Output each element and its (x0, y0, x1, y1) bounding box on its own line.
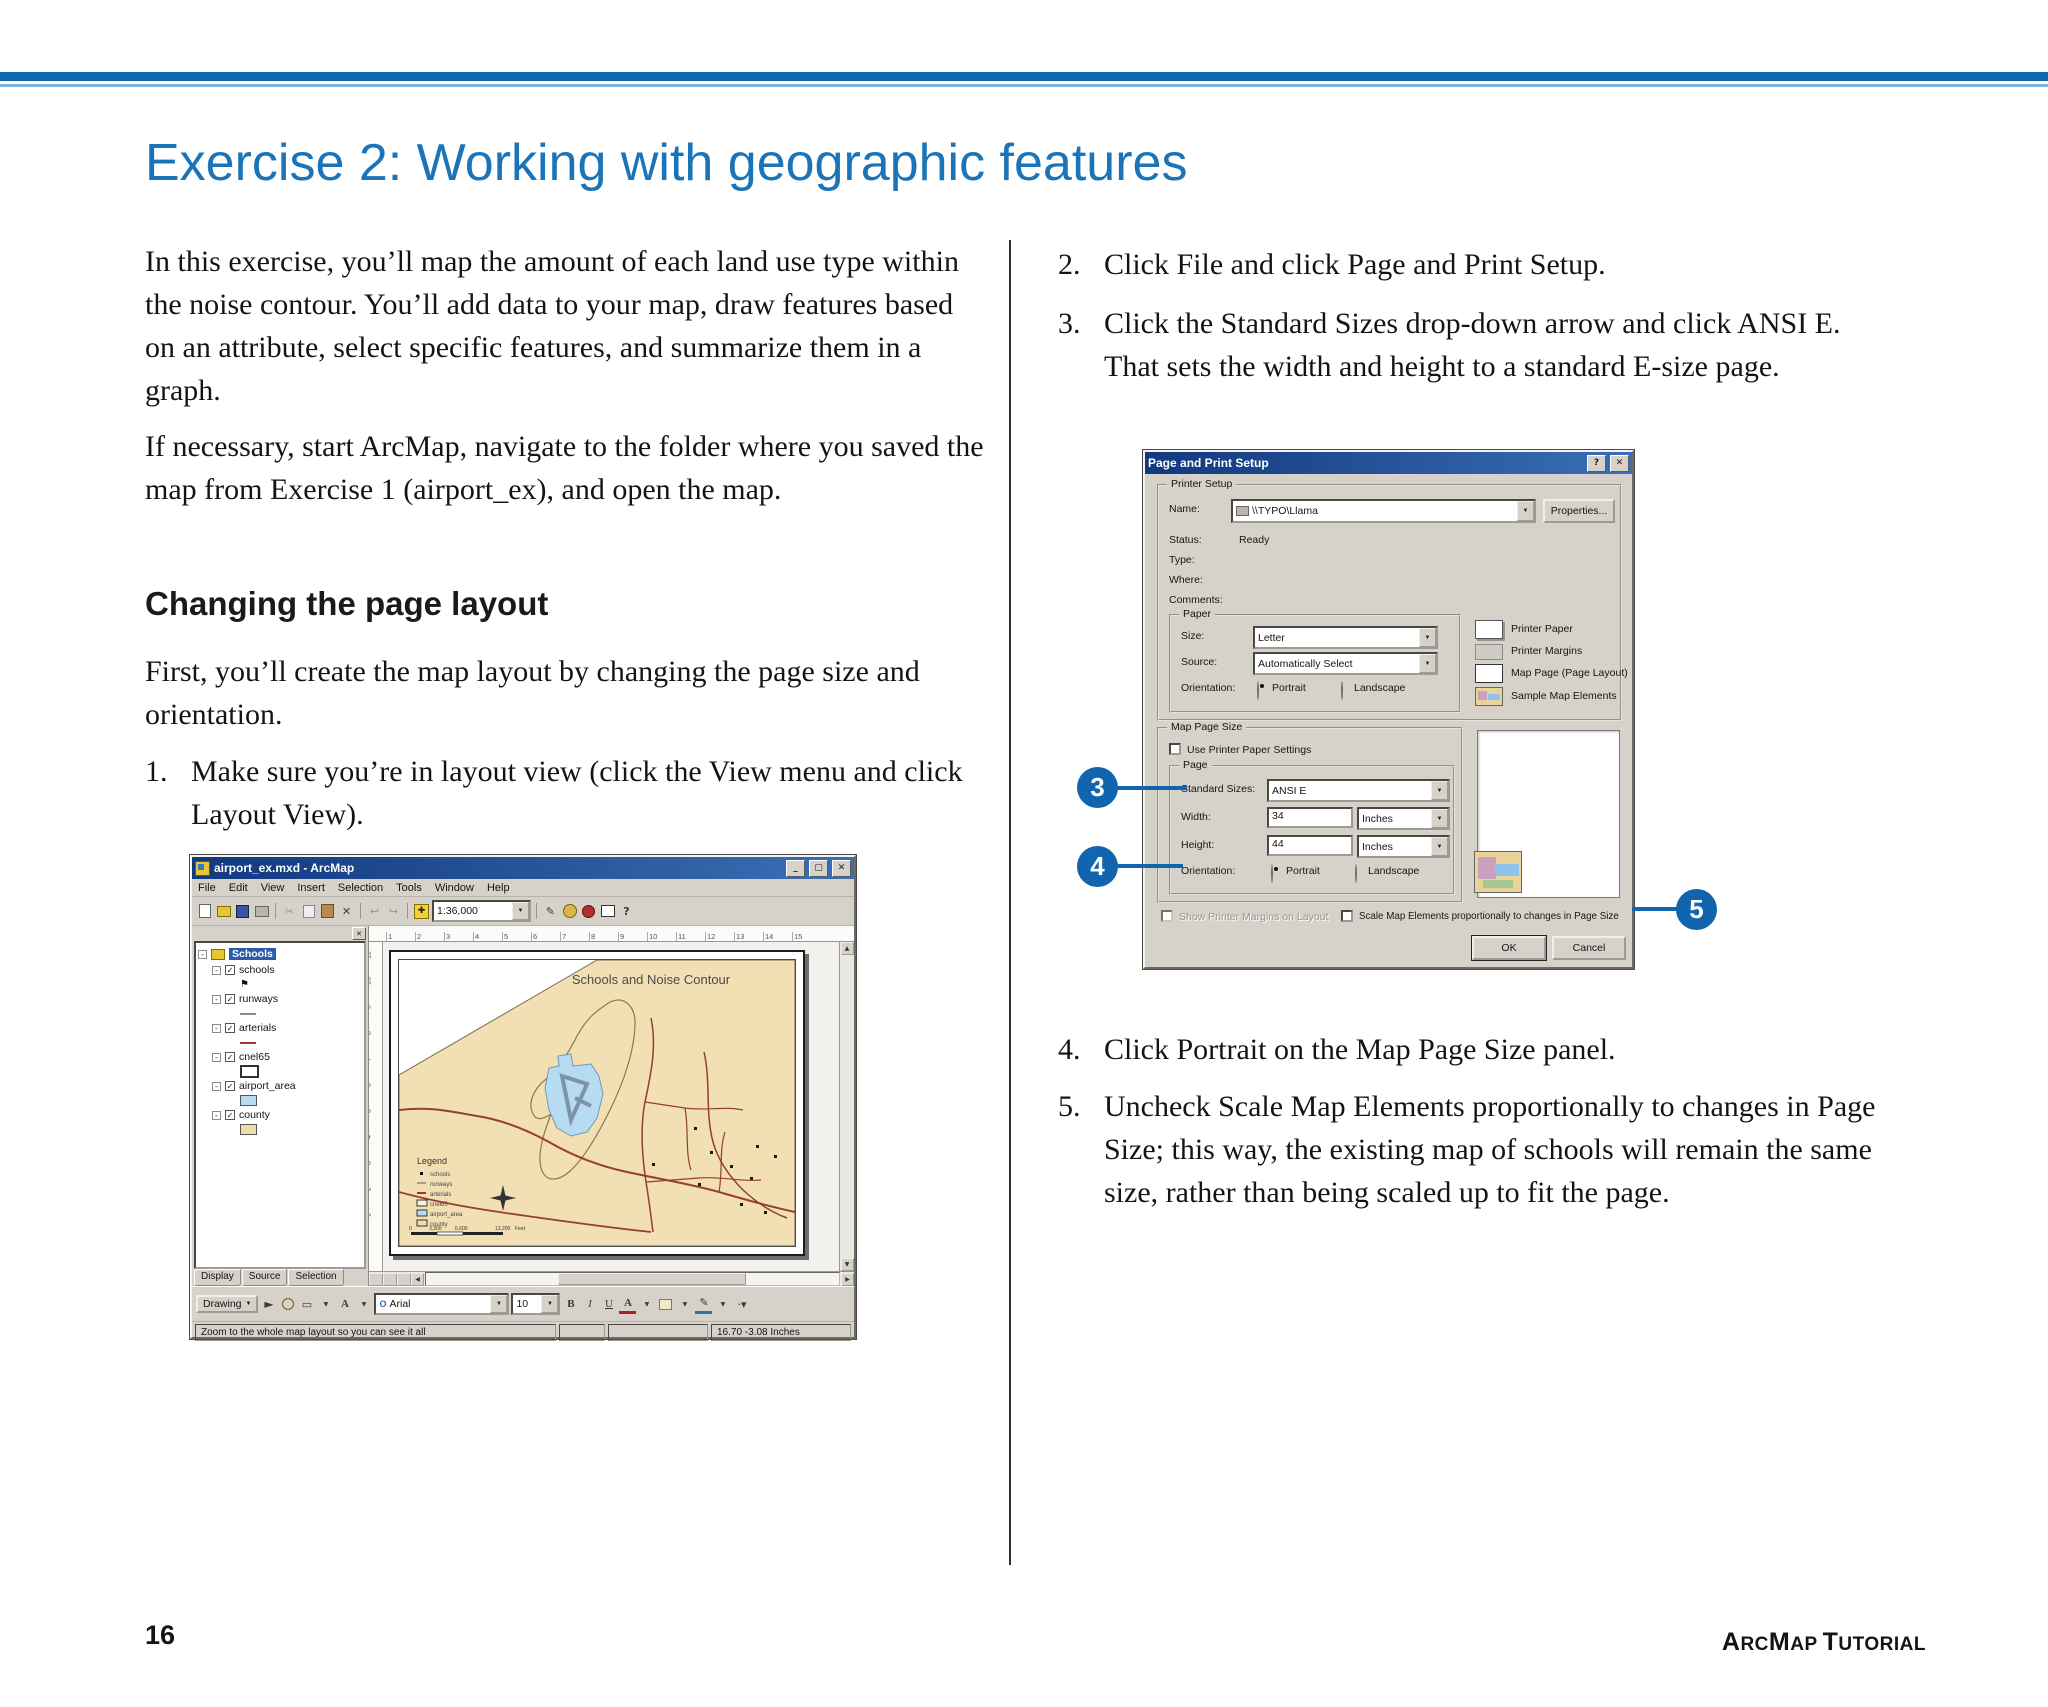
layer-checkbox[interactable]: ✓ (225, 1081, 235, 1091)
status-coordinates: 16.70 -3.08 Inches (711, 1324, 851, 1341)
page-title: Exercise 2: Working with geographic feat… (145, 133, 1187, 193)
scroll-right-icon[interactable]: ▶ (841, 1273, 854, 1286)
layer-row-schools[interactable]: - ✓ schools (198, 962, 362, 978)
dialog-titlebar[interactable]: Page and Print Setup ? ✕ (1145, 452, 1632, 474)
scrollbar-thumb[interactable] (558, 1273, 746, 1285)
rotate-icon[interactable] (279, 1296, 296, 1312)
ruler-tick: 10 (647, 932, 676, 941)
dropdown-icon: ▼ (246, 1301, 252, 1307)
start-arcmap-paragraph: If necessary, start ArcMap, navigate to … (145, 425, 990, 511)
width-label: Width: (1181, 811, 1211, 823)
print-icon[interactable] (253, 903, 270, 919)
printer-paper-swatch (1475, 620, 1503, 639)
layer-name[interactable]: airport_area (239, 1080, 296, 1092)
editor-pencil-icon[interactable]: ✎ (542, 903, 559, 919)
layer-row-airport-area[interactable]: - ✓ airport_area (198, 1078, 362, 1094)
new-map-icon[interactable] (196, 903, 213, 919)
step-5-text: Uncheck Scale Map Elements proportionall… (1104, 1085, 1886, 1214)
step-5-number: 5. (1058, 1085, 1104, 1214)
callout-3-line (1115, 786, 1187, 790)
cancel-button[interactable]: Cancel (1552, 936, 1626, 960)
fill-shape (659, 1299, 672, 1310)
standard-sizes-label: Standard Sizes: (1181, 783, 1255, 795)
step-5: 5. Uncheck Scale Map Elements proportion… (1058, 1085, 1886, 1214)
legend-label: cnel65 (430, 1202, 448, 1208)
callout-4: 4 (1077, 846, 1118, 887)
preview-map-thumbnail (1474, 851, 1522, 893)
top-rule-thin (0, 84, 2048, 87)
scroll-left-icon[interactable]: ◀ (411, 1273, 424, 1286)
layer-symbol-arterials (198, 1036, 362, 1049)
layer-name[interactable]: county (239, 1109, 270, 1121)
step-3-number: 3. (1058, 302, 1104, 388)
layout-view: 1 2 3 4 5 6 7 8 9 10 11 12 13 14 15 (369, 926, 854, 1286)
ruler-tick: 7 (560, 932, 589, 941)
font-size-value: 10 (516, 1298, 538, 1310)
open-icon[interactable] (215, 903, 232, 919)
scroll-up-icon[interactable]: ▲ (841, 942, 854, 955)
height-units-combo[interactable]: Inches ▼ (1357, 835, 1450, 858)
ruler-tick: 2 (415, 932, 444, 941)
portrait-label: Portrait (1272, 682, 1306, 694)
status-value: Ready (1239, 534, 1269, 546)
thumbnail-shape (1478, 857, 1496, 879)
layout-canvas[interactable]: Schools and Noise Contour Legend schools… (383, 942, 839, 1271)
maximize-button[interactable]: ▢ (809, 860, 828, 877)
marker-color-icon[interactable]: ·▾ (733, 1296, 750, 1312)
thumbnail-shape (1495, 864, 1519, 876)
layer-checkbox[interactable]: ✓ (225, 1110, 235, 1120)
layout-page[interactable]: Schools and Noise Contour Legend schools… (389, 950, 805, 1256)
toc-tree: - Schools - ✓ schools ⚑ - ✓ runways (194, 941, 366, 1269)
page-number: 16 (145, 1620, 175, 1651)
school-flag-icon: ⚑ (240, 979, 249, 990)
printer-name-value: \\TYPO\Llama (1252, 505, 1514, 517)
add-data-icon[interactable]: ✚ (413, 903, 430, 919)
new-page-shape (199, 904, 211, 918)
source-dropdown-icon[interactable]: ▼ (1419, 654, 1436, 673)
drawing-label: Drawing (203, 1298, 242, 1310)
expand-icon[interactable]: - (212, 1053, 221, 1062)
map-page-size-group: Map Page Size Use Printer Paper Settings… (1157, 727, 1463, 903)
step-2-number: 2. (1058, 243, 1104, 286)
arcmap-titlebar[interactable]: airport_ex.mxd - ArcMap _ ▢ ✕ (192, 857, 854, 879)
printer-name-combo[interactable]: \\TYPO\Llama ▼ (1231, 499, 1536, 523)
ruler-tick: 15 (792, 932, 821, 941)
layer-checkbox[interactable]: ✓ (225, 1052, 235, 1062)
scalebar-label: 3,300 (429, 1226, 442, 1232)
printer-icon (1236, 506, 1249, 516)
expand-icon[interactable]: - (212, 1082, 221, 1091)
redo-icon[interactable]: ↪ (385, 903, 402, 919)
callout-4-line (1115, 864, 1183, 868)
layout-tool-button[interactable] (383, 1273, 397, 1286)
arcmap-statusbar: Zoom to the whole map layout so you can … (192, 1322, 854, 1342)
shape-dropdown-icon[interactable]: ▼ (317, 1296, 334, 1312)
map-scale-value: 1:36,000 (437, 905, 509, 917)
undo-icon[interactable]: ↩ (366, 903, 383, 919)
line-color-icon[interactable]: ✎ (695, 1295, 712, 1314)
printer-margins-swatch (1475, 644, 1503, 660)
fill-color-icon[interactable] (657, 1296, 674, 1312)
toolbox-shape (582, 905, 595, 918)
step-3-text: Click the Standard Sizes drop-down arrow… (1104, 302, 1888, 388)
scale-elements-label: Scale Map Elements proportionally to cha… (1359, 911, 1619, 922)
layer-checkbox[interactable]: ✓ (225, 965, 235, 975)
menu-tools[interactable]: Tools (396, 882, 422, 894)
standard-sizes-dropdown-icon[interactable]: ▼ (1431, 781, 1448, 800)
map-landscape-label: Landscape (1368, 865, 1419, 877)
tab-selection[interactable]: Selection (288, 1269, 343, 1286)
underline-button[interactable]: U (600, 1296, 617, 1312)
table-of-contents: ✕ - Schools - ✓ schools ⚑ - (192, 926, 369, 1286)
map-frame[interactable]: Schools and Noise Contour Legend schools… (398, 959, 796, 1247)
menu-edit[interactable]: Edit (229, 882, 248, 894)
delete-icon[interactable]: ✕ (338, 903, 355, 919)
whats-this-help-icon[interactable]: ? (618, 903, 635, 919)
thumbnail-shape (1483, 880, 1513, 888)
close-button[interactable]: ✕ (832, 860, 851, 877)
window-shape (601, 905, 615, 917)
drawing-toolbar: Drawing ▼ ► ▭ ▼ A ▼ O Arial ▼ 10 ▼ B I U… (192, 1286, 854, 1322)
map-orientation-label: Orientation: (1181, 865, 1235, 877)
paper-size-combo[interactable]: Letter ▼ (1253, 626, 1438, 649)
text-dropdown-icon[interactable]: ▼ (355, 1296, 372, 1312)
rotate-shape (282, 1298, 294, 1310)
ruler-tick: 1 (386, 932, 415, 941)
floppy-shape (236, 905, 249, 918)
standard-sizes-combo[interactable]: ANSI E ▼ (1267, 779, 1450, 802)
step-1: 1. Make sure you’re in layout view (clic… (145, 750, 975, 836)
legend-label: schools (430, 1172, 450, 1178)
landscape-label: Landscape (1354, 682, 1405, 694)
step-1-text: Make sure you’re in layout view (click t… (191, 750, 975, 836)
menu-view[interactable]: View (261, 882, 285, 894)
toolbar-separator (536, 903, 537, 919)
height-input[interactable]: 44 (1267, 835, 1353, 856)
select-elements-icon[interactable]: ► (260, 1296, 277, 1312)
status-panel (608, 1324, 708, 1341)
brand-part: T (1823, 1628, 1839, 1656)
legend-label: arterials (430, 1192, 451, 1198)
column-divider (1009, 240, 1011, 1565)
ruler-tick: 14 (763, 932, 792, 941)
status-panel (559, 1324, 605, 1341)
layer-name[interactable]: schools (239, 964, 275, 976)
scalebar-label: 6,600 (455, 1226, 468, 1232)
expand-icon[interactable]: - (198, 950, 207, 959)
sample-swatch-shape (1478, 691, 1487, 700)
expand-icon[interactable]: - (212, 1024, 221, 1033)
layer-checkbox[interactable]: ✓ (225, 1023, 235, 1033)
toc-close-icon[interactable]: ✕ (352, 927, 366, 940)
layer-row-county[interactable]: - ✓ county (198, 1107, 362, 1123)
toolbar-separator (360, 903, 361, 919)
tab-source[interactable]: Source (242, 1269, 288, 1286)
brand-part: UTORIAL (1838, 1634, 1926, 1655)
layer-name[interactable]: arterials (239, 1022, 276, 1034)
callout-5-line (1632, 907, 1680, 911)
map-scale-combo[interactable]: 1:36,000 ▼ (432, 900, 531, 922)
layout-paragraph: First, you’ll create the map layout by c… (145, 650, 1015, 736)
orientation-label: Orientation: (1181, 682, 1235, 694)
map-portrait-label: Portrait (1286, 865, 1320, 877)
paper-size-value: Letter (1258, 632, 1416, 644)
page-print-setup-dialog: Page and Print Setup ? ✕ Printer Setup N… (1143, 450, 1634, 969)
tools-globe-icon[interactable] (561, 903, 578, 919)
font-size-combo[interactable]: 10 ▼ (511, 1293, 560, 1315)
map-page-size-label: Map Page Size (1167, 721, 1246, 733)
layer-symbol-runways (198, 1007, 362, 1020)
map-page-label: Map Page (Page Layout) (1511, 667, 1628, 679)
printer-margins-label: Printer Margins (1511, 645, 1582, 657)
layout-body: 11 10 9 8 7 6 5 4 3 2 1 (369, 942, 854, 1271)
globe-shape (563, 904, 577, 918)
ruler-tick: 12 (705, 932, 734, 941)
name-label: Name: (1169, 503, 1200, 515)
show-margins-label: Show Printer Margins on Layout (1179, 911, 1328, 923)
ruler-tick: 13 (734, 932, 763, 941)
map-page-swatch (1475, 664, 1503, 683)
font-dropdown-icon[interactable]: ▼ (490, 1295, 507, 1313)
printer-setup-label: Printer Setup (1167, 478, 1236, 490)
map-title: Schools and Noise Contour (572, 972, 731, 987)
page-group: Page Standard Sizes: ANSI E ▼ Width: 34 … (1169, 765, 1455, 895)
drawing-menu-button[interactable]: Drawing ▼ (196, 1295, 258, 1313)
paper-group: Paper Size: Letter ▼ Source: Automatical… (1169, 614, 1461, 713)
dialog-close-icon[interactable]: ✕ (1610, 455, 1629, 472)
printer-paper-label: Printer Paper (1511, 623, 1573, 635)
layer-name[interactable]: runways (239, 993, 278, 1005)
arcmap-window: airport_ex.mxd - ArcMap _ ▢ ✕ File Edit … (190, 855, 856, 1339)
line-dropdown-icon[interactable]: ▼ (714, 1296, 731, 1312)
status-label: Status: (1169, 534, 1202, 546)
line-symbol (240, 1042, 256, 1044)
printer-shape (255, 906, 269, 917)
step-2-text: Click File and click Page and Print Setu… (1104, 243, 1606, 286)
command-window-icon[interactable] (599, 903, 616, 919)
arc-toolbox-icon[interactable] (580, 903, 597, 919)
step-4: 4. Click Portrait on the Map Page Size p… (1058, 1028, 1908, 1071)
scalebar-label: 0 (409, 1226, 412, 1232)
fill-symbol (240, 1095, 257, 1106)
folder-shape (217, 906, 231, 917)
width-units-combo[interactable]: Inches ▼ (1357, 807, 1450, 830)
text-tool-icon[interactable]: A (336, 1296, 353, 1312)
toolbar-separator (275, 903, 276, 919)
minimize-button[interactable]: _ (786, 860, 805, 877)
brand-part: RC (1740, 1634, 1768, 1655)
legend-label: airport_area (430, 1212, 463, 1218)
legend-label: runways (430, 1182, 452, 1188)
outline-fill-symbol (240, 1065, 259, 1078)
menu-window[interactable]: Window (435, 882, 474, 894)
landscape-radio[interactable] (1341, 681, 1343, 700)
layer-row-runways[interactable]: - ✓ runways (198, 991, 362, 1007)
width-units-dropdown-icon[interactable]: ▼ (1431, 809, 1448, 828)
ruler-tick: 6 (531, 932, 560, 941)
size-dropdown-icon[interactable]: ▼ (1419, 628, 1436, 647)
menu-insert[interactable]: Insert (297, 882, 325, 894)
paste-shape (321, 904, 334, 918)
menu-help[interactable]: Help (487, 882, 510, 894)
layer-row-arterials[interactable]: - ✓ arterials (198, 1020, 362, 1036)
expand-icon[interactable]: - (212, 966, 221, 975)
sample-map-swatch (1475, 687, 1503, 706)
width-units-value: Inches (1362, 813, 1428, 825)
ruler-tick: 9 (618, 932, 647, 941)
comments-label: Comments: (1169, 594, 1223, 606)
expand-icon[interactable]: - (212, 1111, 221, 1120)
toc-header: ✕ (192, 926, 368, 941)
font-symbol-icon: O (379, 1299, 386, 1309)
tab-display[interactable]: Display (194, 1269, 241, 1286)
font-family-value: Arial (389, 1298, 487, 1310)
add-plus-shape: ✚ (414, 904, 429, 919)
printer-dropdown-icon[interactable]: ▼ (1517, 501, 1534, 521)
paper-label: Paper (1179, 608, 1215, 620)
font-color-dropdown-icon[interactable]: ▼ (638, 1296, 655, 1312)
line-symbol (240, 1013, 256, 1015)
layout-tool-button[interactable] (369, 1273, 383, 1286)
status-message: Zoom to the whole map layout so you can … (195, 1324, 556, 1341)
source-label: Source: (1181, 656, 1217, 668)
fill-dropdown-icon[interactable]: ▼ (676, 1296, 693, 1312)
font-family-combo[interactable]: O Arial ▼ (374, 1293, 509, 1315)
layer-symbol-airport-area (198, 1094, 362, 1107)
copy-icon[interactable] (300, 903, 317, 919)
intro-paragraph: In this exercise, you’ll map the amount … (145, 240, 977, 412)
horizontal-scrollbar[interactable] (425, 1272, 840, 1286)
arcmap-workarea: ✕ - Schools - ✓ schools ⚑ - (192, 926, 854, 1286)
dialog-title: Page and Print Setup (1148, 456, 1583, 470)
size-dropdown-icon[interactable]: ▼ (541, 1295, 558, 1313)
scale-elements-checkbox[interactable] (1341, 910, 1353, 922)
use-printer-paper-label: Use Printer Paper Settings (1187, 744, 1311, 756)
dataframe-name[interactable]: Schools (229, 948, 276, 960)
layer-symbol-cnel65 (198, 1065, 362, 1078)
expand-icon[interactable]: - (212, 995, 221, 1004)
ruler-tick: 5 (502, 932, 531, 941)
standard-sizes-value: ANSI E (1272, 785, 1428, 797)
menu-selection[interactable]: Selection (338, 882, 383, 894)
layer-name[interactable]: cnel65 (239, 1051, 270, 1063)
save-icon[interactable] (234, 903, 251, 919)
toolbar-separator (407, 903, 408, 919)
where-label: Where: (1169, 574, 1203, 586)
use-printer-paper-checkbox[interactable] (1169, 743, 1181, 755)
height-label: Height: (1181, 839, 1214, 851)
page-preview (1477, 730, 1620, 898)
map-graphic: Schools and Noise Contour Legend schools… (399, 960, 795, 1246)
brand-part: AP (1790, 1634, 1817, 1655)
callout-5: 5 (1676, 889, 1717, 930)
legend-title: Legend (417, 1156, 447, 1166)
ruler-tick: 4 (473, 932, 502, 941)
scalebar-label: 13,200 (495, 1226, 511, 1232)
dataframe-icon (211, 949, 225, 960)
layer-checkbox[interactable]: ✓ (225, 994, 235, 1004)
step-4-text: Click Portrait on the Map Page Size pane… (1104, 1028, 1616, 1071)
vertical-ruler: 11 10 9 8 7 6 5 4 3 2 1 (369, 942, 383, 1271)
vertical-scrollbar[interactable]: ▲ ▼ (839, 942, 854, 1271)
show-margins-checkbox[interactable] (1161, 910, 1173, 922)
printer-setup-group: Printer Setup Name: \\TYPO\Llama ▼ Prope… (1157, 484, 1622, 721)
page-label: Page (1179, 759, 1212, 771)
width-input[interactable]: 34 (1267, 807, 1353, 828)
arcmap-window-title: airport_ex.mxd - ArcMap (214, 861, 782, 875)
footer-brand: ARCMAPTUTORIAL (1722, 1628, 1926, 1657)
paste-icon[interactable] (319, 903, 336, 919)
horizontal-ruler: 1 2 3 4 5 6 7 8 9 10 11 12 13 14 15 (369, 926, 854, 942)
ruler-origin (369, 932, 386, 941)
copy-shape (303, 905, 315, 918)
brand-part: M (1769, 1628, 1790, 1656)
shape-tool-icon[interactable]: ▭ (298, 1296, 315, 1312)
bold-button[interactable]: B (562, 1296, 579, 1312)
step-4-number: 4. (1058, 1028, 1104, 1071)
scalebar-label: Feet (515, 1226, 526, 1232)
layer-symbol-county (198, 1123, 362, 1136)
dialog-help-icon[interactable]: ? (1587, 455, 1606, 472)
cut-icon[interactable]: ✂ (281, 903, 298, 919)
portrait-radio[interactable] (1257, 681, 1259, 700)
ok-button[interactable]: OK (1472, 936, 1546, 960)
arcmap-menubar: File Edit View Insert Selection Tools Wi… (192, 879, 854, 897)
height-units-value: Inches (1362, 841, 1428, 853)
ruler-tick: 3 (444, 932, 473, 941)
menu-file[interactable]: File (198, 882, 216, 894)
layout-tool-button[interactable] (397, 1273, 411, 1286)
paper-source-value: Automatically Select (1258, 658, 1416, 670)
italic-button[interactable]: I (581, 1296, 598, 1312)
arcmap-app-icon (195, 861, 210, 876)
font-color-icon[interactable]: A (619, 1295, 636, 1314)
properties-button[interactable]: Properties... (1543, 499, 1615, 523)
paper-source-combo[interactable]: Automatically Select ▼ (1253, 652, 1438, 675)
scroll-down-icon[interactable]: ▼ (841, 1258, 854, 1271)
section-heading: Changing the page layout (145, 585, 548, 623)
sample-map-label: Sample Map Elements (1511, 690, 1617, 702)
ruler-tick: 11 (676, 932, 705, 941)
layout-bottom-bar: ◀ ▶ (369, 1271, 854, 1286)
brand-part: A (1722, 1628, 1741, 1656)
ruler-tick: 8 (589, 932, 618, 941)
toc-tabs: Display Source Selection (192, 1269, 368, 1286)
callout-3: 3 (1077, 767, 1118, 808)
map-landscape-radio[interactable] (1355, 864, 1357, 883)
document-page: Exercise 2: Working with geographic feat… (0, 0, 2048, 1707)
size-label: Size: (1181, 630, 1204, 642)
step-3: 3. Click the Standard Sizes drop-down ar… (1058, 302, 1888, 388)
arcmap-standard-toolbar: ✂ ✕ ↩ ↪ ✚ 1:36,000 ▼ ✎ ? (192, 897, 854, 926)
step-1-number: 1. (145, 750, 191, 836)
step-2: 2. Click File and click Page and Print S… (1058, 243, 1908, 286)
layer-symbol-schools: ⚑ (198, 978, 362, 991)
height-units-dropdown-icon[interactable]: ▼ (1431, 837, 1448, 856)
top-rule-thick (0, 72, 2048, 81)
fill-symbol (240, 1124, 257, 1135)
sample-swatch-shape (1488, 694, 1500, 700)
layer-row-cnel65[interactable]: - ✓ cnel65 (198, 1049, 362, 1065)
scale-dropdown-icon[interactable]: ▼ (512, 902, 529, 920)
type-label: Type: (1169, 554, 1195, 566)
toc-dataframe-row[interactable]: - Schools (198, 946, 362, 962)
map-portrait-radio[interactable] (1271, 864, 1273, 883)
